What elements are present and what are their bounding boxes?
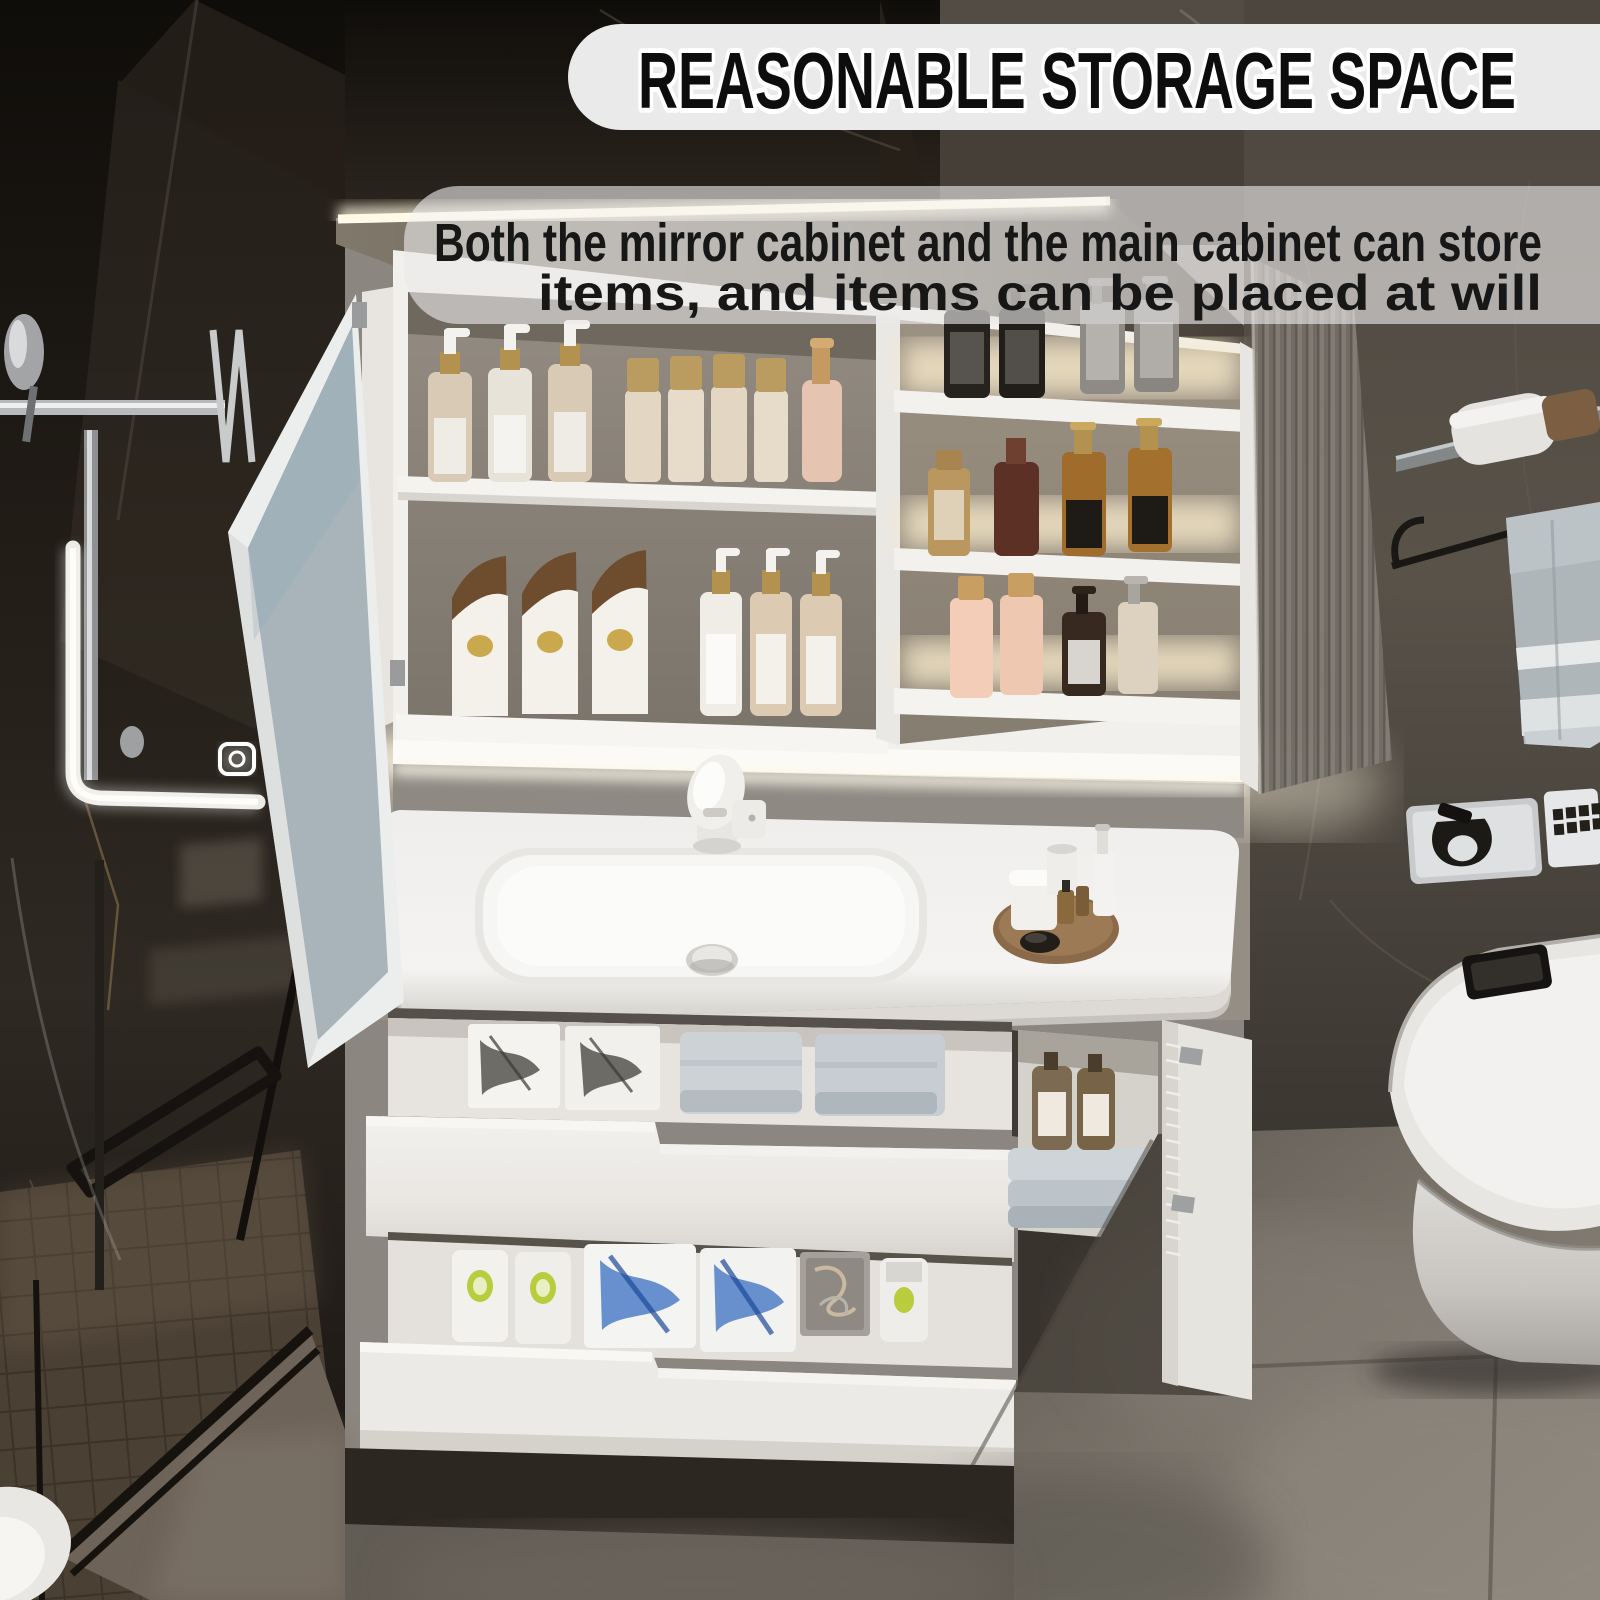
svg-text:items, and items can be placed: items, and items can be placed at will: [538, 265, 1542, 321]
svg-text:Both the mirror cabinet and th: Both the mirror cabinet and the main cab…: [434, 213, 1542, 273]
svg-text:REASONABLE STORAGE SPACE: REASONABLE STORAGE SPACE: [638, 36, 1516, 125]
